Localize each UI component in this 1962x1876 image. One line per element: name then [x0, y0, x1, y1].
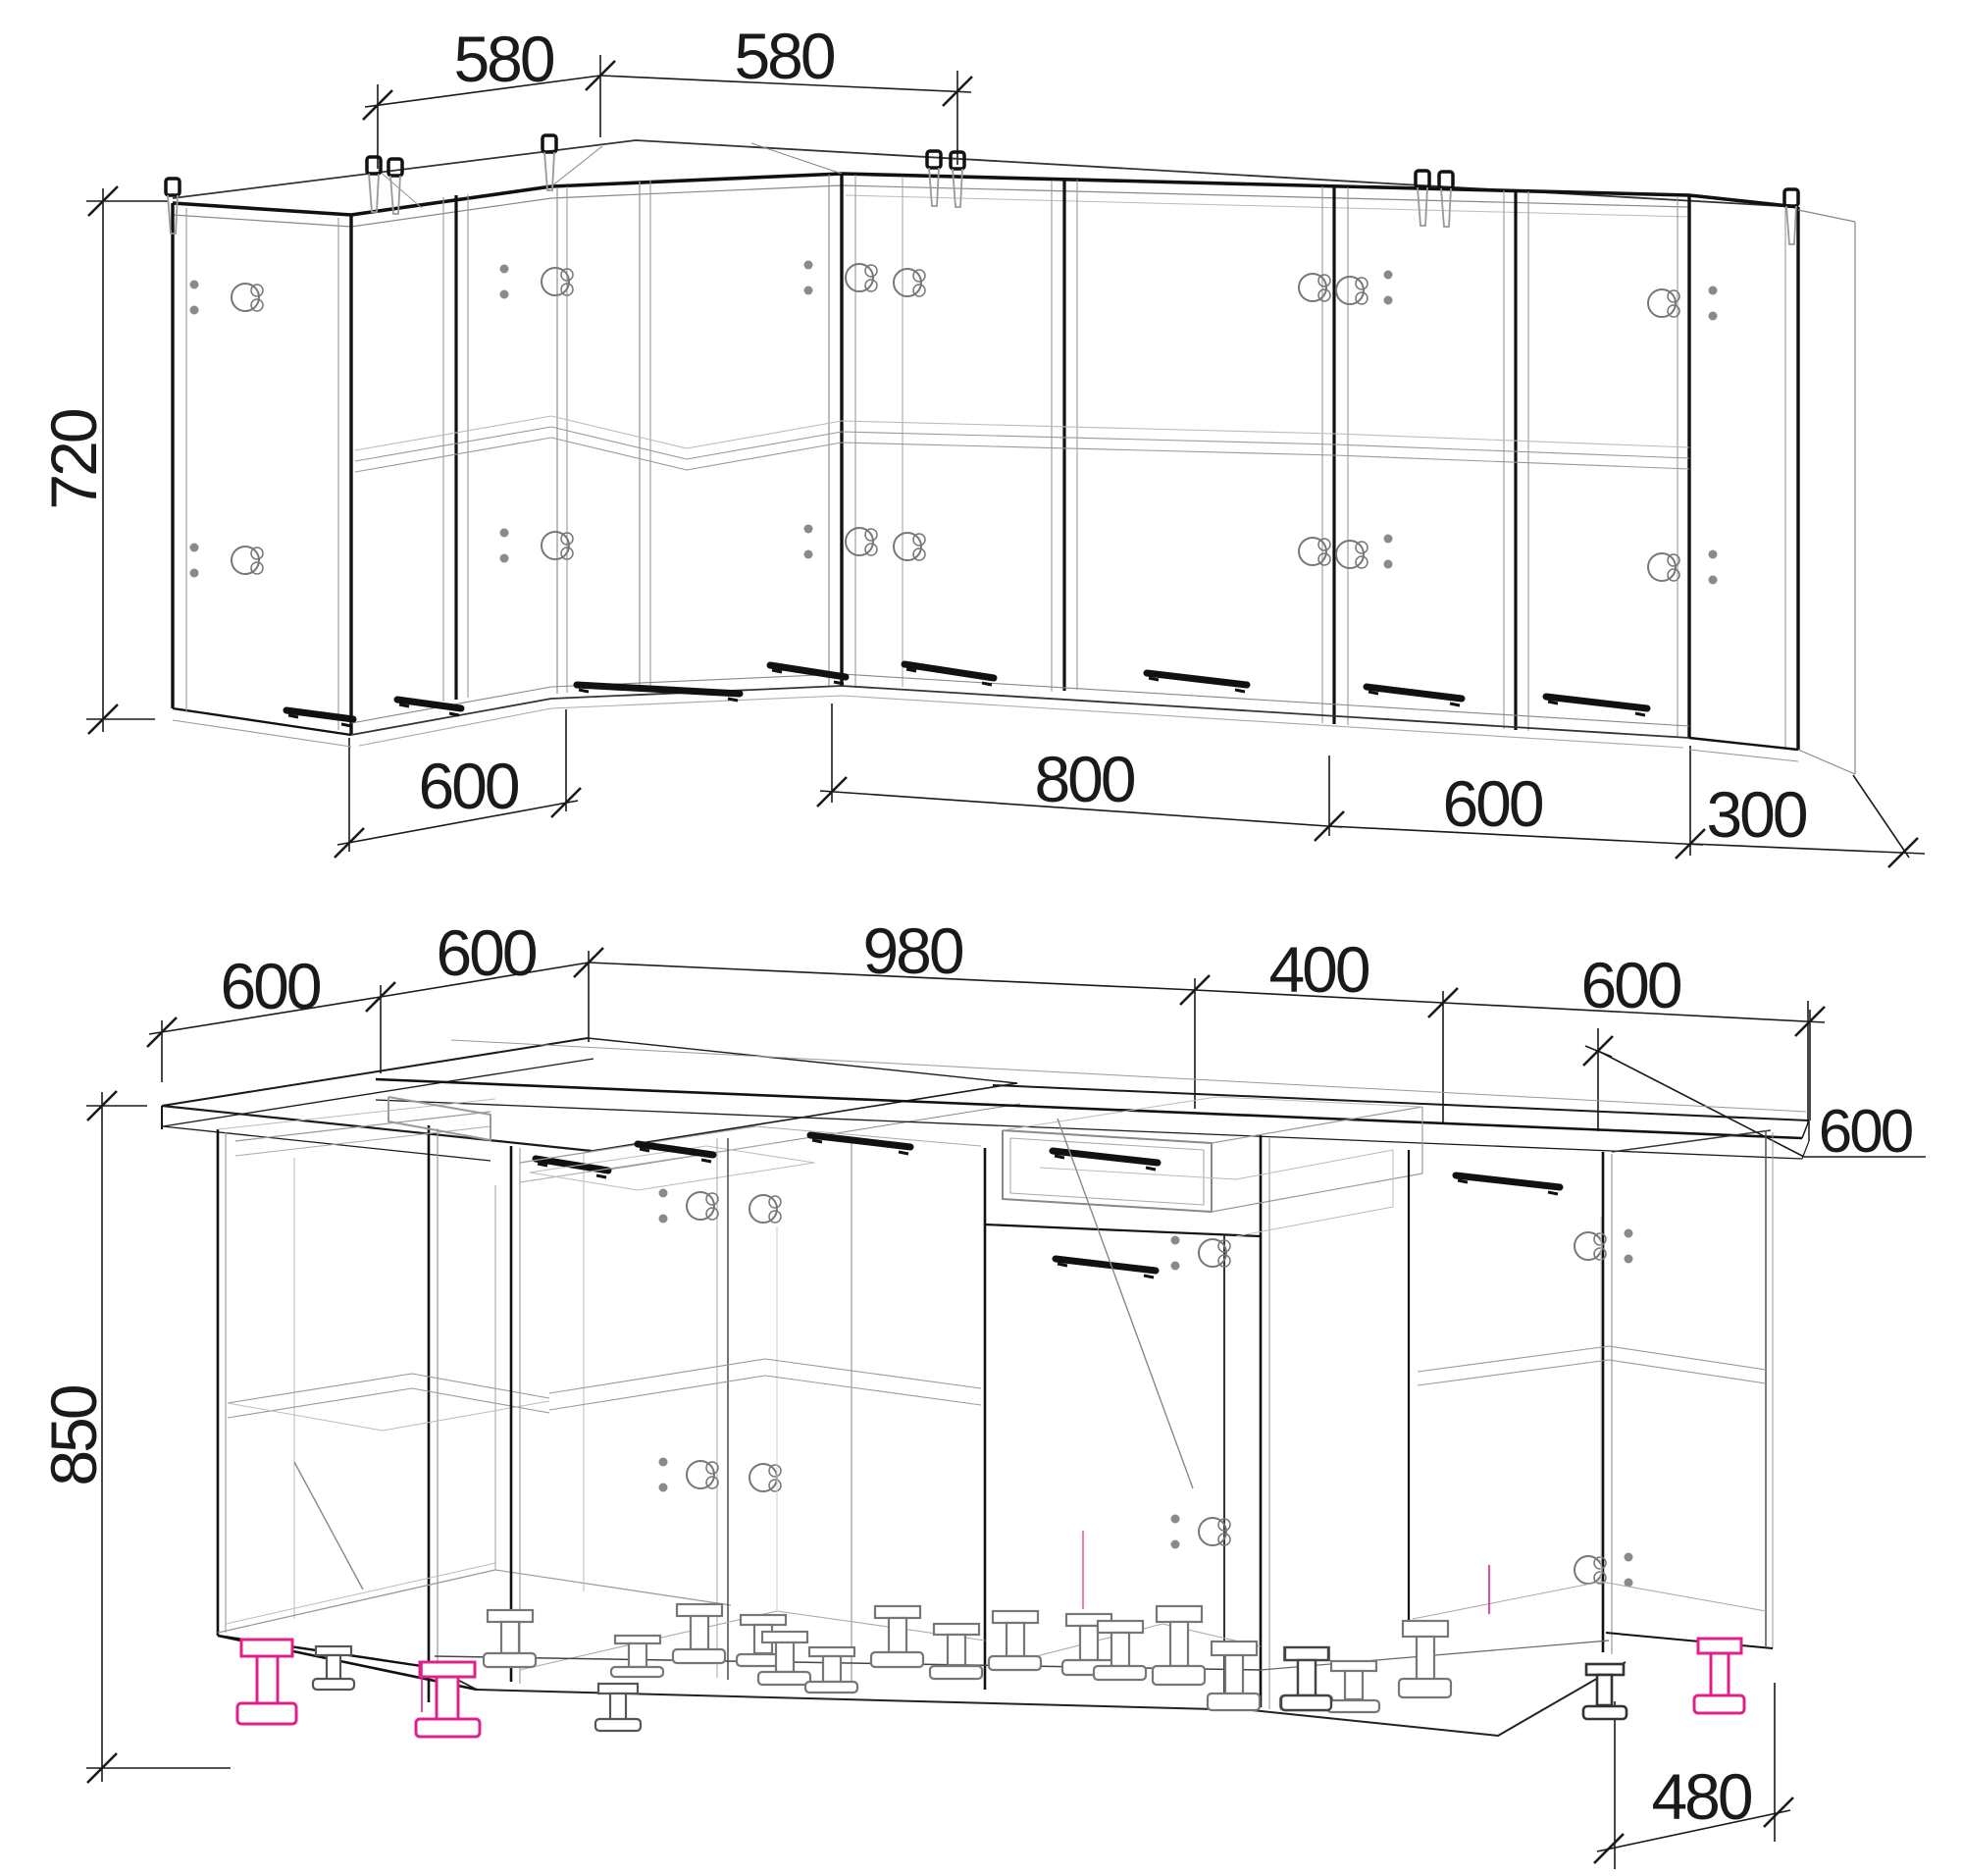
- svg-text:600: 600: [1442, 767, 1542, 840]
- svg-text:400: 400: [1268, 933, 1368, 1006]
- svg-text:300: 300: [1706, 778, 1806, 851]
- svg-text:600: 600: [418, 750, 518, 822]
- svg-text:580: 580: [453, 23, 553, 95]
- svg-text:980: 980: [862, 914, 962, 987]
- svg-text:480: 480: [1651, 1760, 1751, 1833]
- svg-text:600: 600: [1580, 949, 1680, 1021]
- svg-text:800: 800: [1034, 743, 1134, 815]
- svg-text:600: 600: [436, 916, 536, 989]
- svg-text:580: 580: [734, 20, 834, 92]
- svg-text:850: 850: [37, 1385, 110, 1485]
- svg-text:720: 720: [37, 409, 110, 509]
- svg-text:600: 600: [220, 950, 320, 1022]
- svg-text:600: 600: [1819, 1098, 1913, 1166]
